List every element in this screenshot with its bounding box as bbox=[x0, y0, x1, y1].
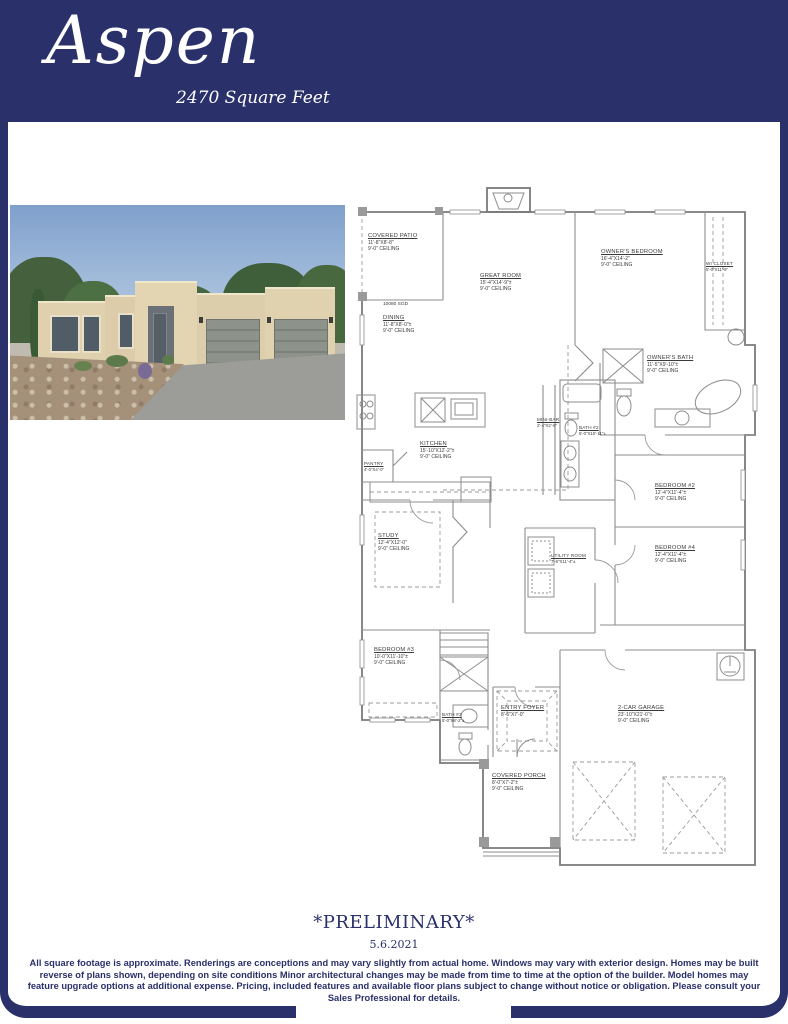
wall-lamp bbox=[329, 317, 333, 323]
room-label-entry-foyer: ENTRY FOYER 8'-6"X7'-0" bbox=[501, 705, 544, 718]
room-label-mini-bar: MINI-BAR 2'-4"X2'-8" bbox=[537, 417, 559, 428]
room-label-pantry: PANTRY 4'-0"X4'-0" bbox=[364, 461, 384, 472]
room-label-utility-room: UTILITY ROOM 7'-6"X11'-4"± bbox=[551, 553, 586, 564]
room-label-wi-closet: WI CLOSET 5'-0"X11'-9" bbox=[706, 261, 733, 272]
room-label-bedroom-3: BEDROOM #3 10'-0"X11'-10"± 9'-0" CEILING bbox=[374, 647, 414, 666]
room-label-bedroom-4: BEDROOM #4 12'-4"X11'-4"± 9'-0" CEILING bbox=[655, 545, 695, 564]
room-label-owners-bath: OWNER'S BATH 11'-5"X9'-10"± 9'-0" CEILIN… bbox=[647, 355, 693, 374]
front-window bbox=[50, 315, 80, 353]
floorplan-drawing bbox=[355, 185, 760, 900]
front-window bbox=[118, 313, 134, 349]
room-label-garage: 2-CAR GARAGE 23'-10"X21'-0"± 9'-0" CEILI… bbox=[618, 705, 664, 724]
room-label-study: STUDY 12'-4"X12'-0" 9'-0" CEILING bbox=[378, 533, 409, 552]
lavender-shrub bbox=[138, 363, 152, 379]
sliding-glass-door-label: 10080 SGD bbox=[383, 302, 408, 307]
dashed-lines bbox=[362, 212, 725, 853]
room-label-bath-2: BATH #2 5'-0"X10'-11"± bbox=[579, 425, 606, 436]
brochure-page: Aspen 2470 Square Feet bbox=[0, 0, 788, 1024]
front-window bbox=[82, 315, 101, 353]
windows bbox=[360, 210, 757, 722]
plan-title: Aspen bbox=[46, 2, 261, 79]
interior-walls bbox=[362, 212, 755, 848]
room-label-great-room: GREAT ROOM 15'-4"X14'-9"± 9'-0" CEILING bbox=[480, 273, 521, 292]
wall-lamp bbox=[267, 317, 271, 323]
floorplan: COVERED PATIO 11'-8"X8'-8" 9'-0" CEILING… bbox=[355, 185, 760, 900]
room-label-bath-3: BATH #3 5'-0"X8'-2"± bbox=[442, 712, 464, 723]
room-label-kitchen: KITCHEN 15'-10"X12'-2"± 9'-0" CEILING bbox=[420, 441, 454, 460]
shrub bbox=[162, 355, 174, 365]
room-label-dining: DINING 11'-8"X8'-0"± 9'-0" CEILING bbox=[383, 315, 414, 334]
door-swings bbox=[410, 435, 665, 707]
bottom-border-gap bbox=[296, 1004, 511, 1020]
room-label-covered-porch: COVERED PORCH 8'-0"X7'-2"± 9'-0" CEILING bbox=[492, 773, 546, 792]
wall-lamp bbox=[199, 317, 203, 323]
room-label-bedroom-2: BEDROOM #2 12'-4"X11'-4"± 9'-0" CEILING bbox=[655, 483, 695, 502]
shrub bbox=[74, 361, 92, 371]
room-label-owners-bedroom: OWNER'S BEDROOM 16'-4"X14'-2" 9'-0" CEIL… bbox=[601, 249, 663, 268]
date-text: 5.6.2021 bbox=[0, 938, 788, 951]
disclaimer-text: All square footage is approximate. Rende… bbox=[24, 958, 764, 1004]
preliminary-text: *PRELIMINARY* bbox=[0, 912, 788, 933]
shrub bbox=[106, 355, 128, 367]
plan-square-feet: 2470 Square Feet bbox=[176, 88, 330, 108]
house-rendering bbox=[10, 205, 345, 420]
room-label-covered-patio: COVERED PATIO 11'-8"X8'-8" 9'-0" CEILING bbox=[368, 233, 417, 252]
fixtures bbox=[357, 193, 746, 856]
